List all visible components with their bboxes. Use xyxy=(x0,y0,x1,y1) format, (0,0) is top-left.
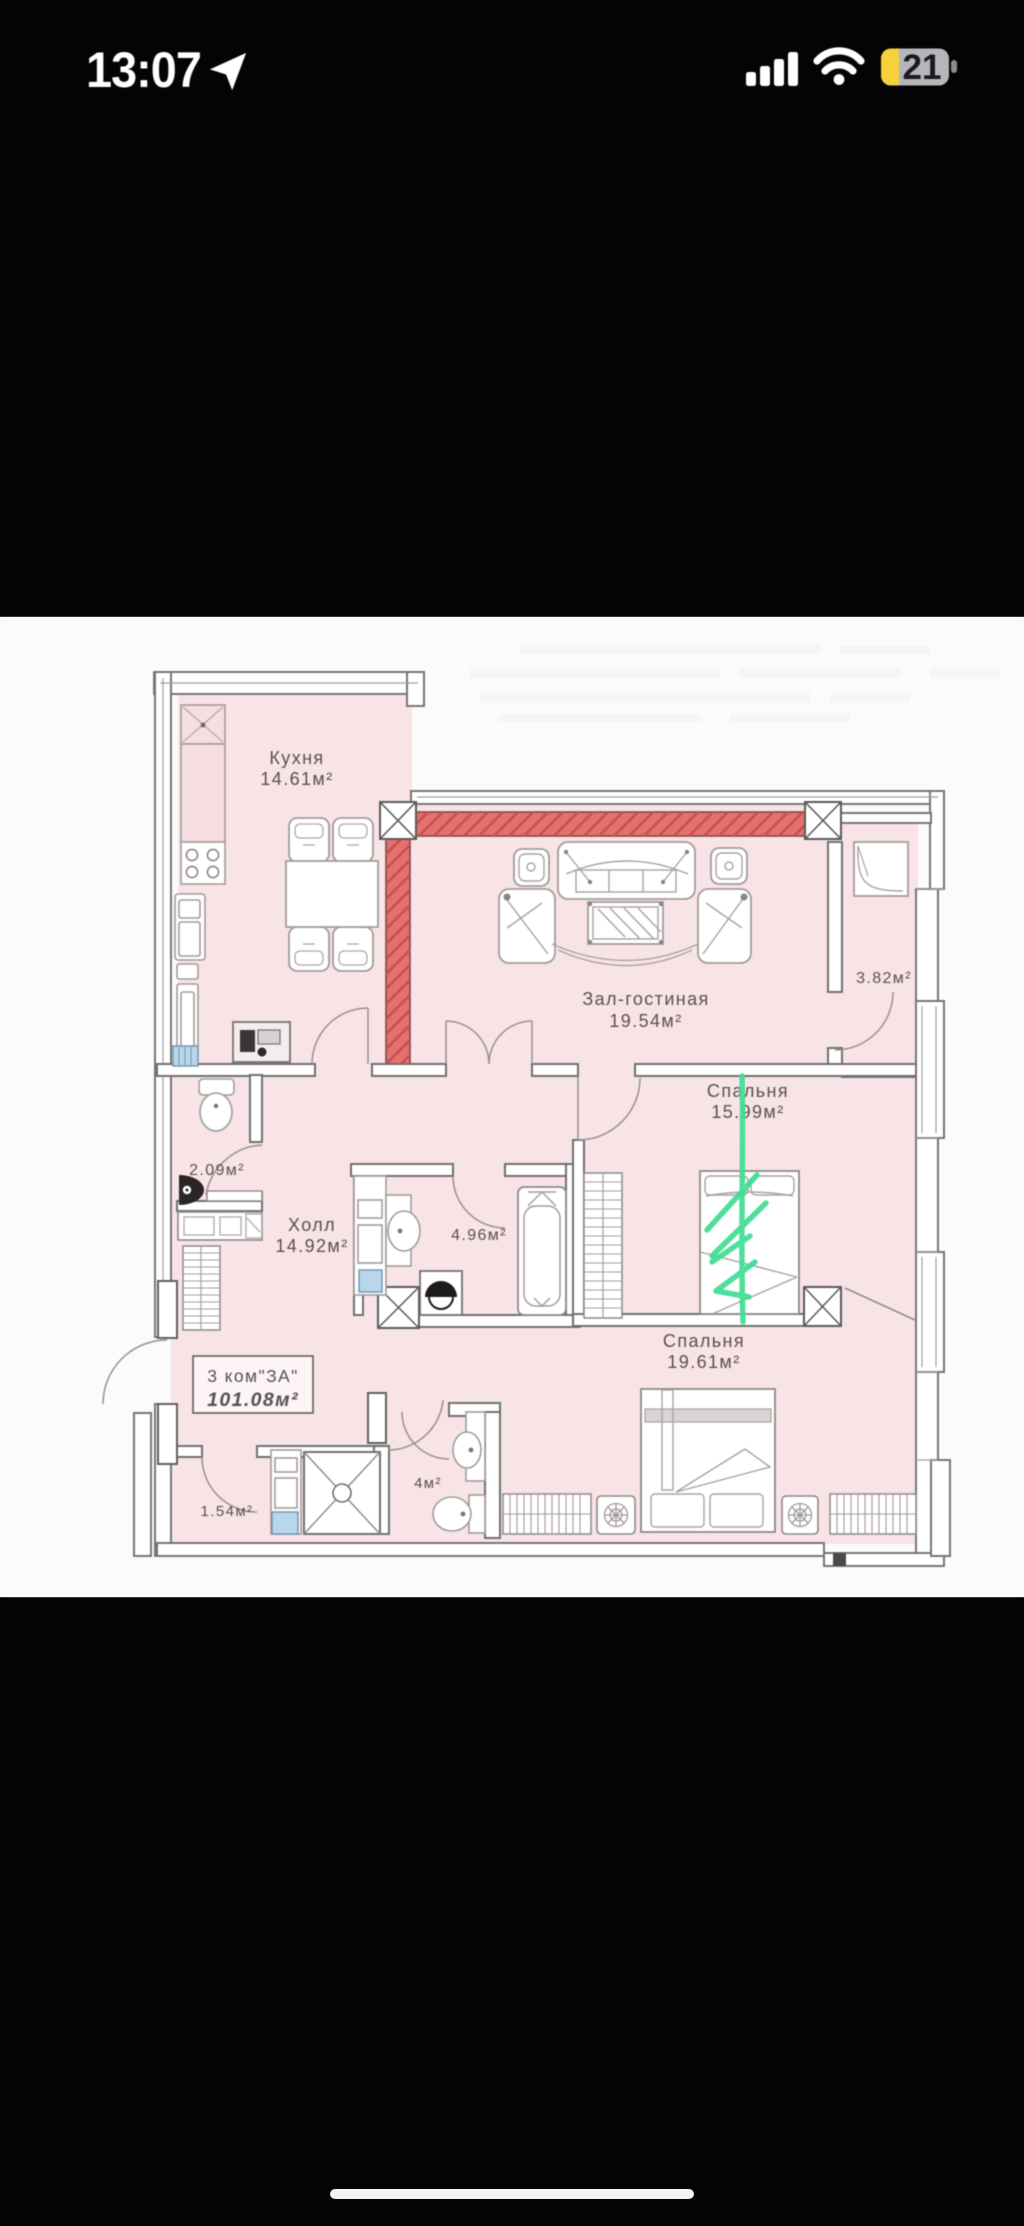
svg-text:14.61м²: 14.61м² xyxy=(260,769,333,789)
svg-text:3.82м²: 3.82м² xyxy=(856,970,912,987)
svg-text:Спальня: Спальня xyxy=(663,1331,745,1351)
svg-text:Зал-гостиная: Зал-гостиная xyxy=(582,989,709,1009)
svg-text:15.99м²: 15.99м² xyxy=(711,1102,784,1122)
svg-text:19.61м²: 19.61м² xyxy=(667,1352,740,1372)
svg-text:2.09м²: 2.09м² xyxy=(189,1162,245,1179)
svg-text:19.54м²: 19.54м² xyxy=(609,1011,682,1031)
svg-text:1.54м²: 1.54м² xyxy=(201,1503,254,1520)
svg-text:4м²: 4м² xyxy=(414,1475,442,1492)
svg-text:101.08м²: 101.08м² xyxy=(207,1389,299,1411)
svg-text:21: 21 xyxy=(903,48,942,87)
svg-text:Кухня: Кухня xyxy=(269,748,324,768)
svg-text:Холл: Холл xyxy=(288,1215,336,1235)
svg-text:3 ком"ЗА": 3 ком"ЗА" xyxy=(207,1366,298,1386)
svg-text:14.92м²: 14.92м² xyxy=(275,1236,348,1256)
svg-text:Спальня: Спальня xyxy=(707,1081,789,1101)
svg-text:4.96м²: 4.96м² xyxy=(451,1227,507,1244)
